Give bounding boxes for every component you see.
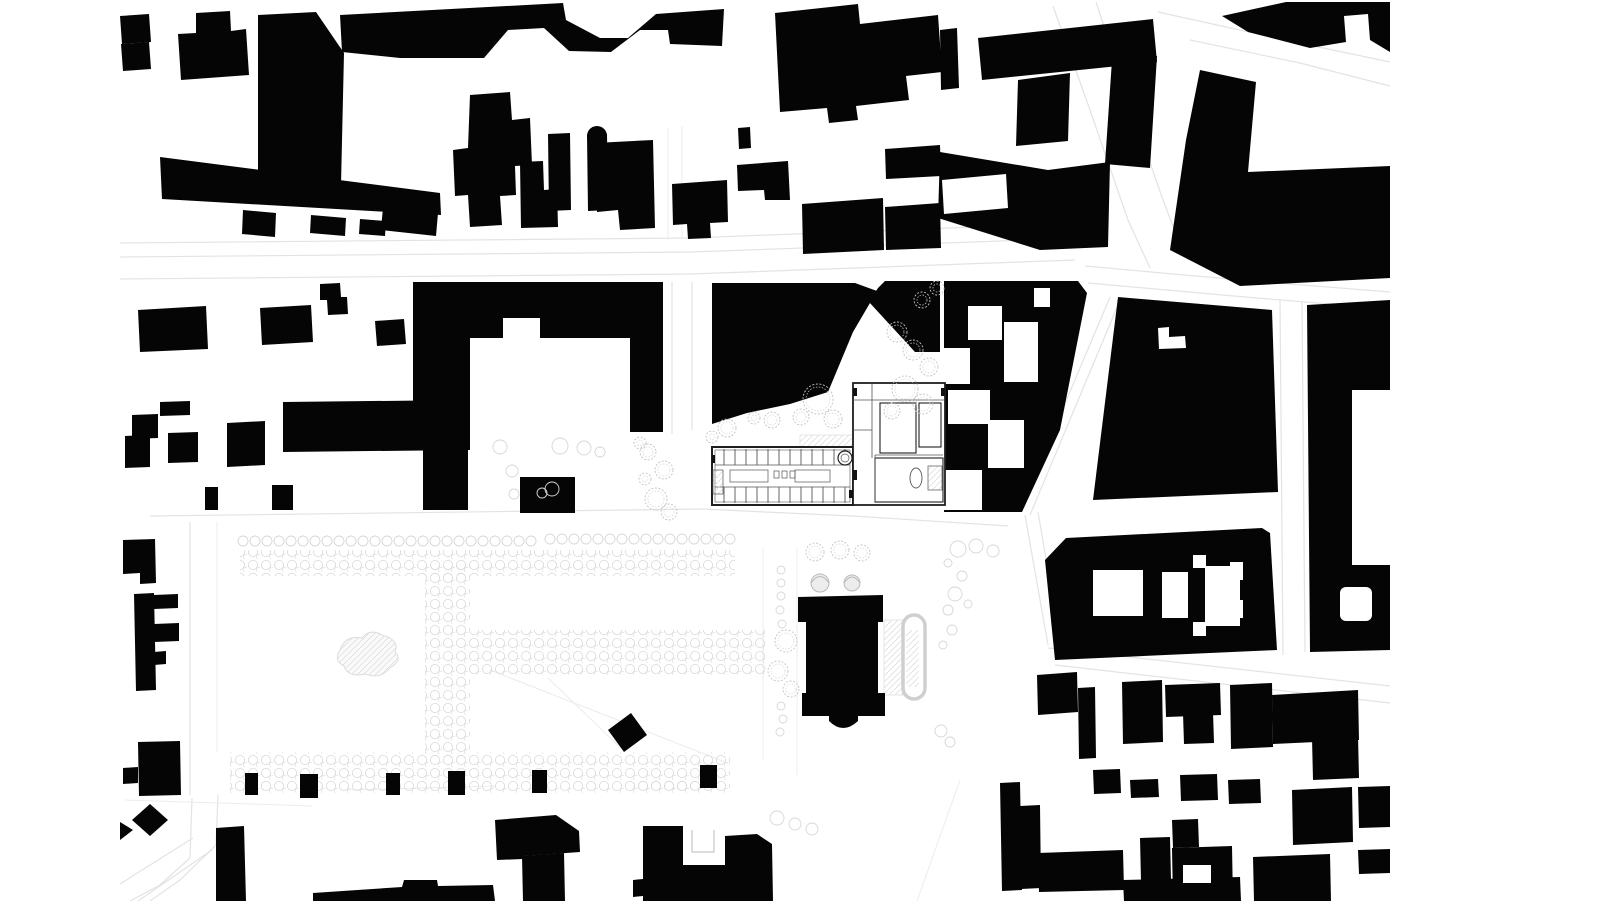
tree-sketch [796,412,806,422]
building [672,180,728,239]
tree-sketch [923,361,935,373]
tree-sketch [857,548,867,558]
tree [569,534,579,544]
tree-row-band [470,630,765,675]
tree [964,600,972,608]
building [1078,687,1096,759]
tree-sketch [661,504,677,520]
courtyard [1230,562,1243,580]
tree [945,737,955,747]
tree-sketch [658,464,670,476]
tree [677,534,687,544]
road-edge [120,838,193,884]
building [310,215,346,236]
tree [442,536,452,546]
building [595,140,655,230]
tree [298,536,308,546]
building [468,282,663,338]
tree-sketch [709,434,715,440]
tree [454,536,464,546]
tree [430,536,440,546]
tree [947,625,957,635]
tree [725,534,735,544]
tree [509,489,519,499]
tree [334,536,344,546]
building [737,161,790,200]
tree [944,559,952,567]
building [320,283,348,315]
tree [806,823,818,835]
tree [689,534,699,544]
building [1093,297,1278,500]
tree [250,536,260,546]
tree-sketch [639,473,651,485]
road-edge [703,509,765,512]
courtyard [988,420,1024,468]
tree [394,536,404,546]
tree-sketch [706,431,718,443]
building [205,487,218,510]
tree [526,536,536,546]
tree [286,536,296,546]
building [1140,837,1171,881]
tree-sketch [854,545,870,561]
tree [593,534,603,544]
bollard-block [448,771,465,795]
building [633,879,643,897]
tree-sketch [778,633,794,649]
tree [262,536,272,546]
tree-sketch [643,447,653,457]
tree [595,447,605,457]
building [134,593,156,691]
tree-sketch [767,415,777,425]
tree-row-band [240,550,735,576]
road-edge [917,780,960,901]
road-edge [138,850,212,901]
building [522,853,565,901]
tree [274,536,284,546]
building [1172,819,1199,848]
bollard-block [300,774,318,798]
tree [943,605,953,615]
building [1183,712,1214,744]
building [1358,849,1390,874]
plan-door-mark [712,455,715,463]
building [1122,680,1163,744]
courtyard [944,470,982,510]
plan-stair [713,470,723,494]
building [940,28,959,90]
bollard-block [532,770,547,793]
tree [478,536,488,546]
road-edge [120,260,1075,279]
building [121,42,151,71]
bollard-block [245,773,258,795]
courtyard [1183,865,1211,883]
courtyard [948,390,990,424]
building [869,281,940,352]
courtyard [1193,555,1206,568]
road-edge [548,678,625,752]
tree [346,536,356,546]
building [453,92,532,227]
plan-door-mark [941,388,945,396]
courtyard [1034,288,1050,307]
tree-sketch [642,476,648,482]
tree-sketch [721,422,733,434]
tree-sketch [634,437,646,449]
site-plan-page [0,0,1612,901]
courtyard [1004,322,1038,382]
building [260,305,313,345]
building [227,421,265,467]
courtyard [1162,572,1188,618]
road-edge [490,670,730,764]
road-edge [765,512,1008,526]
tree-row-band [425,566,470,758]
tree [665,534,675,544]
tree [502,536,512,546]
building [1000,782,1022,891]
building [1037,672,1078,715]
tree [779,715,787,723]
building [1228,779,1261,804]
tree [552,438,568,454]
courtyard [1340,587,1372,621]
tree-sketch [793,409,809,425]
church-terrace [884,620,903,695]
tree [653,534,663,544]
courtyard [503,318,540,338]
bollard-block [386,773,400,795]
tree [629,534,639,544]
tree [577,441,591,455]
tree-sketch [637,440,643,446]
building [120,822,133,840]
tree-sketch [771,664,785,678]
tree [418,536,428,546]
building [1292,787,1353,845]
building [178,11,249,80]
building [120,14,151,44]
plan-stair [928,466,942,490]
plan-spiral-stair [838,451,852,465]
tree-sketch [764,412,780,428]
plan-door-mark [853,388,857,396]
building [313,880,495,901]
tree [466,536,476,546]
building [283,400,468,452]
tree [641,534,651,544]
road-edge [1025,515,1048,645]
plan-terrace-steps [800,435,853,447]
courtyard [1193,622,1206,636]
tree [957,571,967,581]
building [885,203,941,250]
tree [310,536,320,546]
tree [406,536,416,546]
plan-door-mark [853,470,857,480]
tree-sketch [827,413,839,425]
courtyard [686,828,720,862]
tree [987,545,999,557]
tree-row-band [633,778,699,790]
building [1045,528,1277,660]
building [802,198,884,254]
tree [777,592,785,600]
tree-sketch [809,546,821,558]
building [375,319,406,346]
road-edge [125,800,312,806]
building [1020,805,1041,889]
building [738,127,751,149]
building [1130,779,1159,798]
tree [617,534,627,544]
building [138,741,181,796]
building [1180,774,1218,801]
building [423,450,468,510]
building [1105,56,1157,168]
building [1165,683,1221,717]
building [1230,683,1273,749]
building [1170,70,1390,286]
courtyard [968,306,1002,340]
garden-oval-hatch [906,630,919,687]
road-edge [1302,302,1305,652]
tree [581,534,591,544]
building [630,338,663,432]
tree [514,536,524,546]
tree [789,818,801,830]
building [1222,2,1390,52]
courtyard [1352,390,1392,565]
courtyard [944,348,970,384]
building [154,623,179,642]
church-building [798,595,885,728]
building [132,804,168,836]
building [160,401,190,416]
tree [948,587,962,601]
tree [777,702,785,710]
tree-sketch [751,415,757,421]
park-layer [230,534,765,794]
tree-sketch [640,444,656,460]
tree [770,811,784,825]
tree-sketch [748,412,760,424]
building [272,485,293,510]
plan-door-mark [849,490,853,498]
building [340,3,724,58]
building [520,477,575,513]
tree [358,536,368,546]
courtyard [1230,600,1243,618]
building [1016,73,1070,146]
tree [776,606,784,614]
tree [322,536,332,546]
building [1038,850,1124,892]
courtyard [942,174,1008,214]
road-edge [150,509,703,516]
building [1093,769,1121,794]
building [125,435,150,468]
building [1253,854,1331,901]
tree [493,440,507,454]
tree [490,536,500,546]
tree [939,641,947,649]
building [587,126,607,146]
tree [557,534,567,544]
building [885,145,941,179]
building [1272,690,1359,744]
site-plan-map [0,0,1612,901]
building [123,767,138,784]
tree [506,465,518,477]
plan-long-wing [712,447,853,505]
building [258,12,344,186]
building [1123,877,1241,901]
building [1358,786,1390,828]
building [154,594,178,609]
bollard-block [700,765,717,788]
building [168,432,198,463]
tree-sketch [834,544,846,556]
tree-sketch [664,507,674,517]
tree [935,725,947,737]
tree [969,539,983,553]
tree [778,620,786,628]
road-edge [1280,300,1283,655]
tree [776,728,784,736]
building [216,826,246,901]
plan-room [919,403,941,447]
building [1312,736,1359,780]
tree [701,534,711,544]
tree [777,566,785,574]
tree [238,536,248,546]
building [138,306,208,352]
tree [605,534,615,544]
tree [545,534,555,544]
tree [950,541,966,557]
building [495,815,580,860]
building [242,210,276,237]
tree [370,536,380,546]
tree-sketch [648,491,664,507]
tree [713,534,723,544]
courtyard [1093,570,1143,616]
building [154,651,166,665]
tree-sketch [786,684,796,694]
building [123,539,156,584]
tree [382,536,392,546]
church-layer [798,574,925,728]
building [775,4,942,123]
plan-room [880,403,916,453]
tree [777,579,785,587]
